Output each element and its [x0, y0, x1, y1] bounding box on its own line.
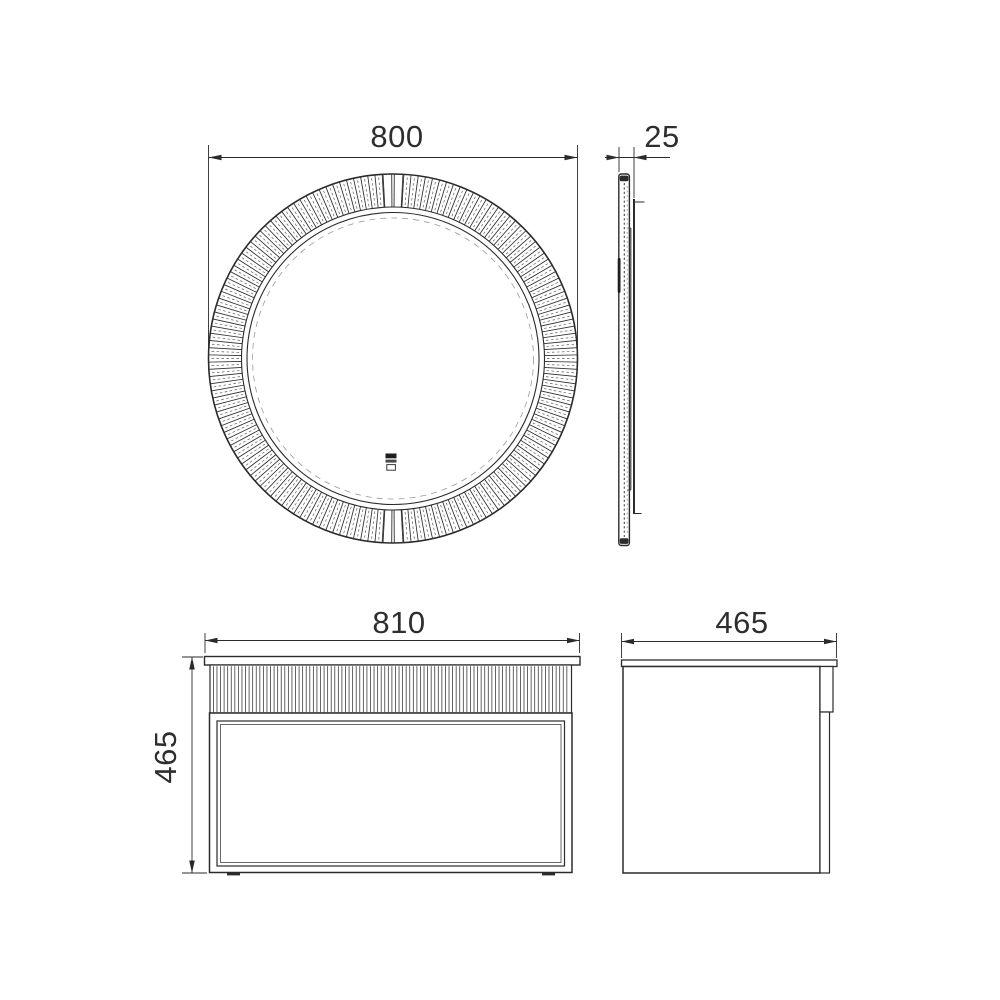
flute-dashed-line — [527, 434, 552, 448]
flute-dashed-line — [217, 400, 244, 408]
flute-line — [448, 500, 460, 531]
flute-line — [265, 226, 288, 250]
flute-line — [209, 348, 242, 350]
flute-line — [502, 464, 526, 487]
flute-line — [470, 489, 487, 517]
flute-dashed-line — [211, 365, 239, 366]
flute-line — [475, 486, 493, 514]
flute-line — [221, 291, 252, 303]
arrowhead — [189, 861, 195, 874]
vanity-foot-pad-right — [542, 873, 555, 876]
flute-line — [319, 189, 332, 219]
flute-line — [246, 450, 272, 470]
flute-dashed-line — [234, 434, 259, 448]
flute-dashed-line — [372, 511, 375, 539]
flute-line — [368, 176, 373, 209]
flute-dashed-line — [216, 394, 244, 401]
flute-dashed-line — [405, 512, 407, 540]
flute-dashed-line — [304, 199, 318, 224]
dimension-vanity-width: 810 — [205, 605, 580, 653]
mirror-profile-bottom-cap — [620, 538, 629, 544]
flute-dashed-line — [547, 351, 575, 352]
flute-dashed-line — [237, 439, 261, 454]
flute-line — [210, 379, 243, 384]
flute-line — [517, 253, 544, 272]
flute-line — [527, 430, 556, 446]
flute-line — [213, 319, 245, 326]
flute-line — [542, 385, 574, 391]
flute-line — [346, 180, 354, 212]
vanity-carcass-front — [210, 713, 573, 873]
flute-dashed-line — [547, 365, 575, 366]
flute-line — [542, 326, 574, 332]
flute-line — [408, 509, 411, 542]
flute-line — [230, 272, 259, 288]
flute-line — [534, 414, 565, 426]
flute-dashed-line — [524, 439, 548, 454]
dimension-vanity-height: 465 — [148, 657, 207, 873]
arrowhead — [205, 638, 218, 644]
flute-line — [521, 259, 549, 277]
flute-dashed-line — [479, 487, 495, 511]
vanity-fluted-band — [210, 665, 572, 713]
flute-dashed-line — [350, 508, 357, 536]
touch-switch-top-bar — [386, 454, 397, 459]
flute-dashed-line — [541, 309, 568, 317]
flute-line — [540, 312, 572, 320]
vanity-countertop-front — [205, 657, 581, 666]
flute-line — [209, 361, 242, 362]
flute-line — [276, 216, 297, 242]
flute-dashed-line — [241, 444, 265, 460]
vanity-drawer-edge-upper — [820, 667, 833, 713]
flute-line — [431, 505, 439, 537]
flute-dashed-line — [463, 196, 476, 221]
dimension-mirror-width: 800 — [209, 119, 578, 354]
flute-dashed-line — [405, 177, 407, 205]
flute-line — [361, 177, 367, 209]
flute-line — [454, 497, 467, 527]
mirror-outer-circle — [209, 174, 578, 543]
flute-line — [514, 247, 540, 267]
flute-line — [502, 231, 526, 254]
flute-line — [294, 486, 312, 514]
arrowhead — [607, 155, 620, 161]
flute-dashed-line — [292, 207, 308, 231]
flute-dashed-line — [527, 269, 552, 283]
dimension-mirror-depth-label: 25 — [644, 119, 679, 154]
flute-dashed-line — [473, 203, 488, 227]
flute-line — [353, 178, 360, 210]
flute-line — [532, 285, 562, 298]
flute-line — [214, 312, 246, 320]
flute-line — [209, 340, 242, 343]
flute-line — [230, 430, 259, 446]
flute-line — [242, 445, 269, 464]
flute-dashed-line — [350, 181, 357, 209]
flute-line — [498, 226, 521, 250]
flute-dashed-line — [530, 428, 555, 441]
flute-line — [414, 509, 419, 542]
flute-dashed-line — [521, 444, 545, 460]
flute-line — [544, 355, 577, 356]
flute-line — [288, 483, 307, 510]
flute-line — [514, 450, 540, 470]
flute-dashed-line — [230, 428, 255, 441]
flute-line — [211, 326, 243, 332]
flute-line — [213, 391, 245, 398]
flute-line — [521, 440, 549, 458]
flute-line — [276, 476, 297, 502]
flute-line — [368, 509, 373, 542]
flute-line — [524, 435, 552, 452]
flute-dashed-line — [379, 177, 381, 205]
flute-line — [255, 236, 280, 258]
flute-line — [209, 373, 242, 376]
dimension-vanity-depth-label: 465 — [715, 605, 768, 640]
flute-line — [484, 211, 504, 237]
flute-dashed-line — [547, 371, 575, 373]
flute-line — [246, 247, 272, 267]
flute-line — [540, 397, 572, 405]
touch-switch-bottom-box — [387, 465, 396, 471]
flute-line — [375, 509, 378, 542]
flute-dashed-line — [343, 507, 351, 534]
flute-line — [544, 373, 577, 376]
flute-line — [224, 285, 254, 298]
flute-line — [408, 175, 411, 208]
flute-line — [475, 203, 493, 231]
flute-dashed-line — [310, 496, 323, 521]
flute-line — [544, 348, 577, 350]
flute-line — [260, 231, 284, 254]
arrowhead — [567, 638, 580, 644]
flute-dashed-line — [463, 496, 476, 521]
flute-line — [319, 497, 332, 527]
flute-line — [425, 506, 432, 538]
flute-line — [414, 176, 419, 209]
arrowhead — [634, 155, 647, 161]
flute-dashed-line — [298, 203, 313, 227]
flute-line — [464, 196, 480, 225]
flute-line — [489, 216, 510, 242]
flute-line — [300, 199, 317, 227]
flute-line — [494, 472, 516, 497]
touch-switch-icon — [386, 454, 397, 471]
flute-line — [234, 265, 262, 282]
flute-line — [214, 397, 246, 405]
vanity-foot-pad-left — [227, 873, 240, 876]
flute-dashed-line — [216, 316, 244, 323]
dimension-mirror-width-label: 800 — [370, 119, 423, 154]
flute-dashed-line — [547, 344, 575, 346]
flute-line — [300, 489, 317, 517]
flute-dashed-line — [530, 276, 555, 289]
flute-line — [288, 207, 307, 234]
flute-line — [517, 445, 544, 464]
flute-line — [282, 211, 302, 237]
flute-dashed-line — [521, 257, 545, 273]
flute-line — [306, 492, 322, 521]
arrowhead — [824, 639, 837, 645]
flute-line — [375, 175, 378, 208]
mirror-profile-top-cap — [620, 176, 629, 182]
flute-dashed-line — [230, 276, 255, 289]
flute-line — [532, 419, 562, 432]
dimension-vanity-width-label: 810 — [372, 605, 425, 640]
flute-dashed-line — [372, 177, 375, 205]
flute-dashed-line — [524, 263, 548, 278]
flute-line — [448, 187, 460, 218]
flute-dashed-line — [241, 257, 265, 273]
flute-line — [459, 495, 473, 525]
flute-line — [425, 178, 432, 210]
flute-line — [221, 414, 252, 426]
flute-line — [260, 464, 284, 487]
flute-dashed-line — [217, 309, 244, 317]
flute-line — [265, 468, 288, 492]
flute-line — [250, 455, 276, 476]
flute-line — [459, 192, 473, 222]
flute-dashed-line — [543, 316, 571, 323]
flute-dashed-line — [546, 377, 574, 380]
flute-line — [255, 459, 280, 481]
flute-line — [480, 207, 499, 234]
arrowhead — [622, 639, 635, 645]
flute-line — [312, 192, 326, 222]
vanity-carcass-side — [623, 667, 820, 874]
flute-line — [211, 385, 243, 391]
flute-line — [541, 391, 573, 398]
flute-dashed-line — [211, 371, 239, 373]
flute-line — [282, 479, 302, 505]
flute-dashed-line — [304, 493, 318, 518]
touch-switch-mid-bar — [386, 460, 397, 463]
flute-dashed-line — [429, 181, 436, 209]
flute-line — [470, 199, 487, 227]
flute-line — [209, 367, 242, 369]
flute-dashed-line — [211, 351, 239, 352]
flute-line — [234, 435, 262, 452]
flute-dashed-line — [237, 263, 261, 278]
flute-dashed-line — [310, 196, 323, 221]
flute-line — [494, 221, 516, 246]
flute-line — [510, 455, 536, 476]
arrowhead — [209, 155, 222, 161]
flute-line — [498, 468, 521, 492]
flute-dashed-line — [473, 490, 488, 514]
flute-line — [250, 241, 276, 262]
flute-dashed-line — [546, 337, 574, 340]
flute-dashed-line — [212, 377, 240, 380]
flute-line — [420, 177, 426, 209]
drawing-svg: 800 25 — [0, 0, 1000, 1000]
technical-drawing-page: 800 25 — [0, 0, 1000, 1000]
mirror-side-view: 25 — [605, 119, 680, 546]
flute-line — [353, 506, 360, 538]
flute-line — [529, 425, 559, 439]
flute-dashed-line — [298, 490, 313, 514]
flute-line — [534, 291, 565, 303]
flute-line — [294, 203, 312, 231]
flute-line — [420, 508, 426, 540]
arrowhead — [189, 657, 195, 670]
flute-line — [210, 333, 243, 338]
flute-dashed-line — [234, 269, 259, 283]
flute-line — [242, 253, 269, 272]
vanity-countertop-side — [622, 660, 838, 667]
flute-dashed-line — [379, 512, 381, 540]
flute-dashed-line — [411, 177, 414, 205]
mirror-fluted-ring — [209, 174, 578, 543]
vanity-side-view: 465 — [622, 605, 838, 873]
arrowhead — [565, 155, 578, 161]
flute-line — [510, 241, 536, 262]
flute-line — [544, 340, 577, 343]
flute-line — [361, 508, 367, 540]
flute-line — [527, 272, 556, 288]
dimension-mirror-depth: 25 — [605, 119, 680, 198]
flute-dashed-line — [468, 493, 482, 518]
flute-dashed-line — [543, 394, 571, 401]
flute-dashed-line — [429, 508, 436, 536]
flute-dashed-line — [292, 487, 308, 511]
flute-dashed-line — [343, 183, 351, 210]
flute-dashed-line — [411, 511, 414, 539]
flute-line — [541, 319, 573, 326]
flute-line — [227, 425, 257, 439]
flute-line — [326, 500, 338, 531]
flute-line — [224, 419, 254, 432]
flute-dashed-line — [211, 344, 239, 346]
flute-dashed-line — [479, 207, 495, 231]
flute-line — [543, 333, 576, 338]
flute-line — [506, 236, 531, 258]
flute-line — [524, 265, 552, 282]
flute-dashed-line — [541, 400, 568, 408]
flute-line — [306, 196, 322, 225]
flute-dashed-line — [435, 183, 443, 210]
flute-line — [506, 459, 531, 481]
vanity-drawer-edge-lower — [820, 712, 830, 873]
flute-line — [227, 278, 257, 292]
flute-line — [544, 361, 577, 362]
flute-dashed-line — [468, 199, 482, 224]
flute-line — [544, 367, 577, 369]
flute-line — [238, 259, 266, 277]
flute-dashed-line — [435, 507, 443, 534]
flute-line — [464, 492, 480, 521]
flute-line — [312, 495, 326, 525]
flute-line — [529, 278, 559, 292]
flute-line — [270, 221, 292, 246]
flute-line — [346, 505, 354, 537]
flute-line — [326, 187, 338, 218]
flute-line — [484, 479, 504, 505]
flute-line — [431, 180, 439, 212]
flute-line — [489, 476, 510, 502]
mirror-front-view: 800 — [209, 119, 578, 543]
flute-line — [238, 440, 266, 458]
dimension-vanity-height-label: 465 — [148, 730, 183, 783]
wall-bracket-mark — [618, 258, 621, 293]
flute-line — [480, 483, 499, 510]
flute-line — [454, 189, 467, 219]
flute-dashed-line — [212, 337, 240, 340]
vanity-front-view: 810 465 — [148, 605, 580, 875]
flute-line — [270, 472, 292, 497]
dimension-vanity-depth: 465 — [622, 605, 837, 658]
flute-line — [543, 379, 576, 384]
flute-line — [209, 355, 242, 356]
